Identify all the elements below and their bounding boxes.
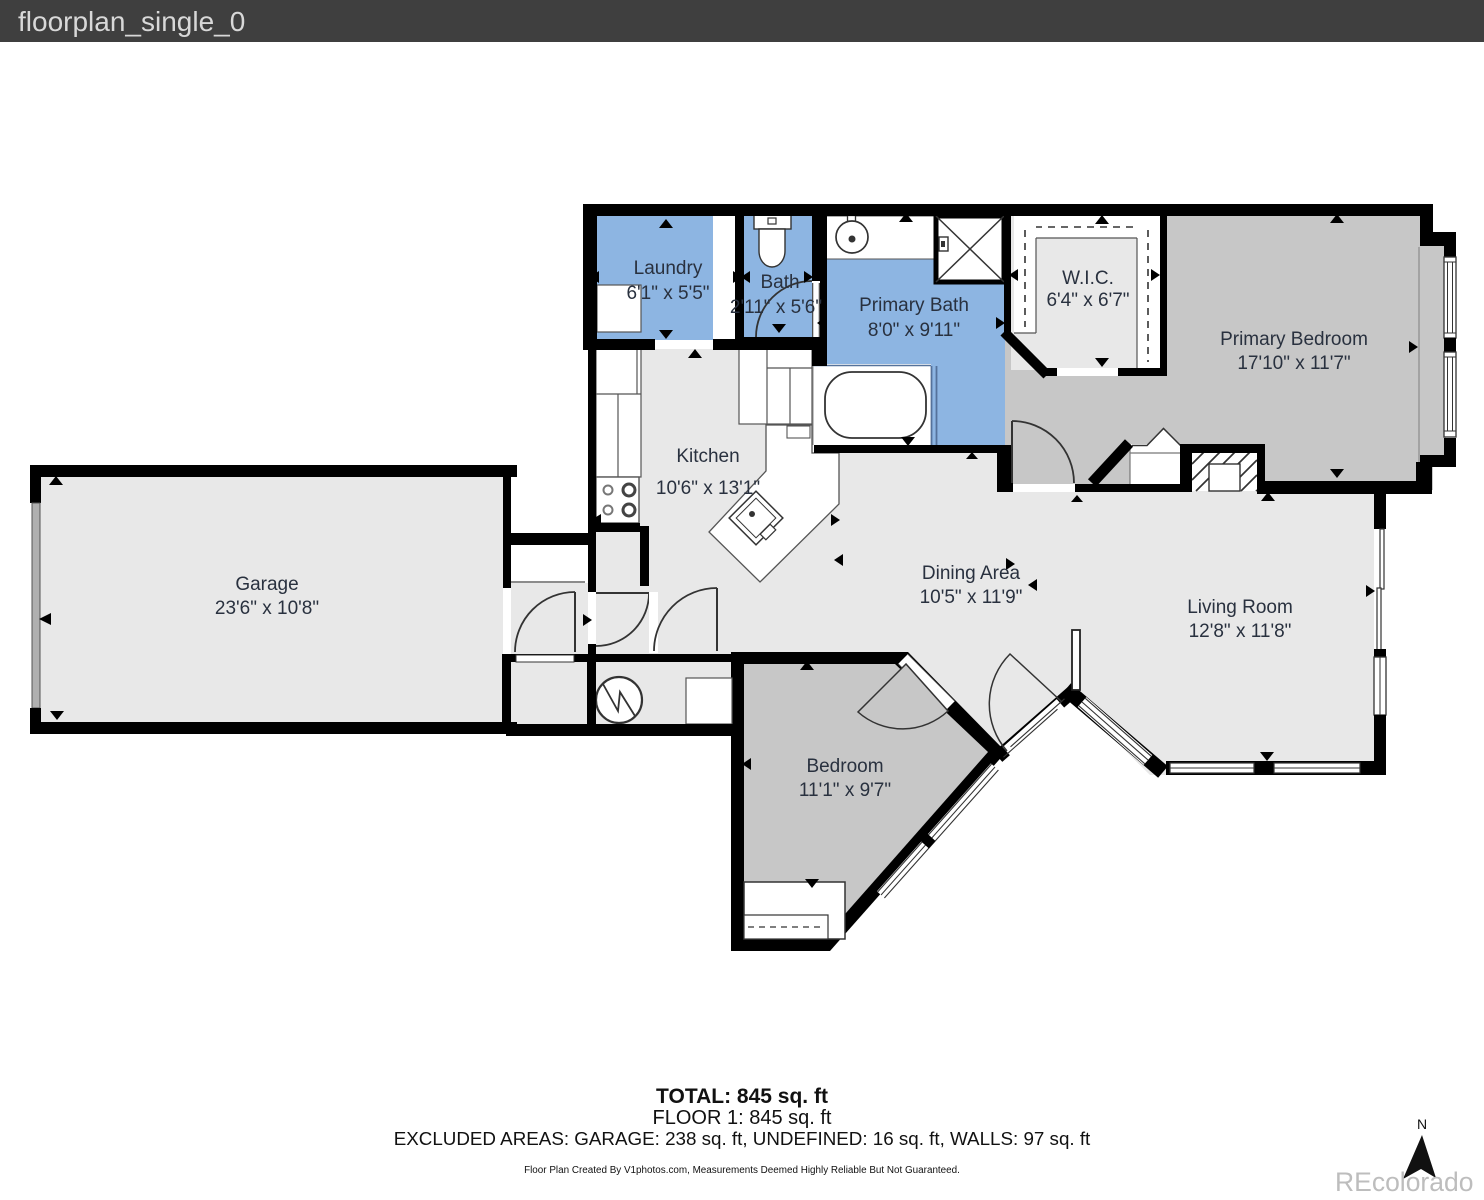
svg-text:11'1" x 9'7": 11'1" x 9'7"	[799, 780, 891, 801]
svg-text:10'5" x 11'9": 10'5" x 11'9"	[920, 587, 1023, 608]
svg-text:Bath: Bath	[760, 272, 799, 293]
svg-text:8'0" x 9'11": 8'0" x 9'11"	[868, 320, 960, 341]
svg-text:Floor Plan Created By V1photos: Floor Plan Created By V1photos.com, Meas…	[524, 1165, 960, 1176]
svg-text:FLOOR 1: 845 sq. ft: FLOOR 1: 845 sq. ft	[653, 1107, 832, 1129]
svg-text:Bedroom: Bedroom	[806, 756, 883, 777]
svg-text:Laundry: Laundry	[634, 258, 703, 279]
svg-text:floorplan_single_0: floorplan_single_0	[18, 6, 245, 37]
svg-text:REcolorado: REcolorado	[1335, 1167, 1473, 1197]
svg-text:17'10" x 11'7": 17'10" x 11'7"	[1237, 353, 1350, 374]
svg-text:W.I.C.: W.I.C.	[1062, 268, 1114, 289]
svg-text:N: N	[1417, 1116, 1427, 1132]
svg-text:TOTAL: 845 sq. ft: TOTAL: 845 sq. ft	[656, 1085, 828, 1108]
svg-text:6'1" x 5'5": 6'1" x 5'5"	[626, 283, 709, 304]
svg-text:2'11" x 5'6": 2'11" x 5'6"	[730, 297, 822, 318]
svg-text:Primary Bath: Primary Bath	[859, 295, 969, 316]
svg-text:Dining Area: Dining Area	[922, 563, 1021, 584]
svg-text:Primary Bedroom: Primary Bedroom	[1220, 329, 1368, 350]
svg-text:Living Room: Living Room	[1187, 597, 1293, 618]
svg-text:10'6" x 13'1": 10'6" x 13'1"	[656, 478, 760, 499]
svg-text:Kitchen: Kitchen	[676, 446, 739, 467]
svg-text:Garage: Garage	[235, 574, 298, 595]
svg-text:23'6" x 10'8": 23'6" x 10'8"	[215, 598, 319, 619]
svg-text:12'8" x 11'8": 12'8" x 11'8"	[1189, 621, 1292, 642]
svg-text:6'4" x 6'7": 6'4" x 6'7"	[1046, 290, 1129, 311]
svg-text:EXCLUDED AREAS: GARAGE: 238 sq: EXCLUDED AREAS: GARAGE: 238 sq. ft, UNDE…	[394, 1128, 1091, 1149]
